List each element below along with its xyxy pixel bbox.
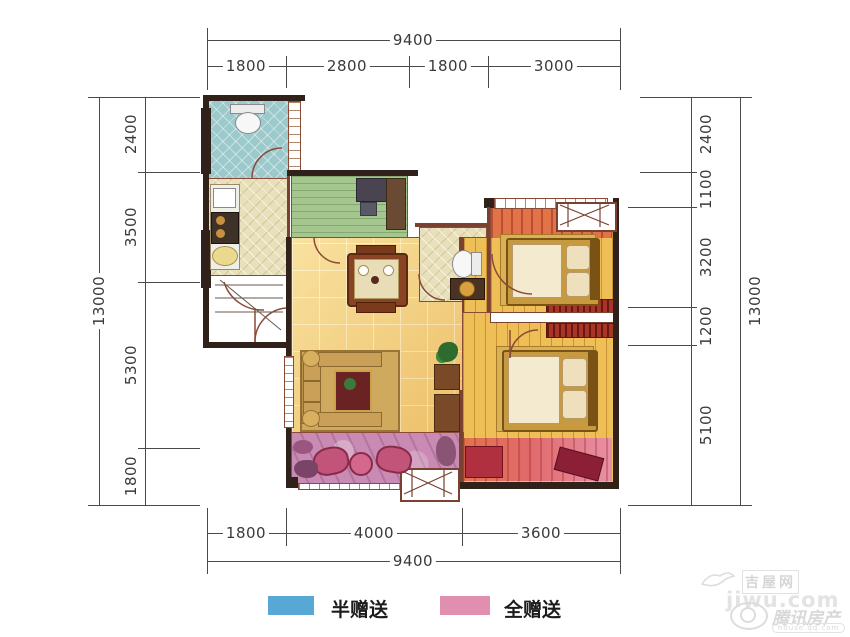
legend-swatch-full-gift xyxy=(440,596,490,615)
balcony-table xyxy=(349,452,373,476)
floorplan-page: 9400 1800 2800 1800 3000 1800 4000 3600 … xyxy=(0,0,850,637)
dim-top-seg-2: 1800 xyxy=(425,57,471,75)
dim-left-tick-top xyxy=(88,97,200,98)
bedroom2-pillow-1 xyxy=(566,245,590,270)
watermark-tencent-url: house.qq.com xyxy=(772,623,845,633)
master-desk xyxy=(465,446,503,478)
dim-bot-tick-2 xyxy=(462,508,463,546)
bay-box-bottom xyxy=(400,468,460,502)
dim-top-tick-3 xyxy=(488,56,489,88)
sofa-seat-top xyxy=(318,352,382,367)
dim-left-tick-3 xyxy=(138,448,200,449)
dim-left-seg-1: 3500 xyxy=(122,204,140,250)
dining-plate-1 xyxy=(358,265,369,276)
dim-right-tick-bot xyxy=(628,505,752,506)
tv-cabinet-1 xyxy=(434,364,460,390)
study-chair xyxy=(360,202,377,216)
wardrobe-master xyxy=(546,323,614,338)
dim-top-total: 9400 xyxy=(390,31,436,49)
dim-top-seg-0: 1800 xyxy=(223,57,269,75)
dim-bot-ext-right xyxy=(620,508,621,574)
vanity-sink xyxy=(459,281,475,297)
bedroom2-pillow-2 xyxy=(566,272,590,297)
wall-kitchen-bottom xyxy=(203,342,291,348)
dim-top-seg-3: 3000 xyxy=(531,57,577,75)
stove-burner-2 xyxy=(216,229,225,238)
dim-left-total: 13000 xyxy=(90,273,108,329)
dim-top-seg-1: 2800 xyxy=(324,57,370,75)
dim-bot-ext-left xyxy=(207,508,208,574)
window-living-left xyxy=(284,356,294,428)
dim-bot-total: 9400 xyxy=(390,552,436,570)
bedroom2-mattress xyxy=(512,244,562,298)
dim-right-seg-3: 1200 xyxy=(697,303,715,349)
wall-hall-bedroom2 xyxy=(487,207,490,312)
master-mattress xyxy=(508,356,560,424)
dim-bot-seg-2: 3600 xyxy=(518,524,564,542)
dim-left-seg-3: 1800 xyxy=(122,453,140,499)
ottoman-2 xyxy=(302,410,320,427)
dining-bowl-center xyxy=(371,276,379,284)
legend-label-full-gift: 全赠送 xyxy=(504,595,561,622)
bay-box-top-right xyxy=(556,202,617,232)
dim-left-seg-line xyxy=(145,97,146,505)
wall-balcony-corner-left xyxy=(286,477,298,488)
dim-top-tick-1 xyxy=(286,56,287,88)
stove-burner-1 xyxy=(216,216,225,225)
dim-right-seg-0: 2400 xyxy=(697,111,715,157)
toilet-bowl-main xyxy=(235,112,261,134)
dim-bot-tick-1 xyxy=(286,508,287,546)
dim-left-tick-1 xyxy=(138,172,200,173)
wall-master-bottom xyxy=(458,482,619,489)
coffee-table xyxy=(334,370,372,412)
room-entry-hall xyxy=(208,275,289,347)
dim-right-seg-2: 3200 xyxy=(697,234,715,280)
dining-plate-2 xyxy=(383,265,394,276)
balcony-plant-right xyxy=(436,436,456,466)
study-cabinet xyxy=(386,178,406,230)
tencent-logo-inner xyxy=(740,607,756,623)
wall-bath2-top xyxy=(415,223,490,227)
dim-bot-seg-1: 4000 xyxy=(351,524,397,542)
dim-right-tick-top xyxy=(640,97,752,98)
wall-between-bedrooms xyxy=(490,312,615,323)
dim-right-tick-4 xyxy=(628,345,698,346)
balcony-plant-corner xyxy=(294,460,318,478)
wall-right-outer xyxy=(613,198,619,489)
toilet-tank-small xyxy=(471,252,482,276)
kitchen-washer xyxy=(212,246,238,266)
window-bathroom-right xyxy=(288,101,301,176)
dim-top-ext-right xyxy=(620,28,621,90)
dining-chair-bottom xyxy=(356,302,396,313)
dim-right-seg-1: 1100 xyxy=(697,166,715,212)
kitchen-stove xyxy=(211,212,239,244)
dim-left-seg-2: 5300 xyxy=(122,342,140,388)
bedroom2-headboard xyxy=(590,240,598,300)
legend-swatch-half-gift xyxy=(268,596,314,615)
dim-right-seg-line xyxy=(691,97,692,505)
sofa-seat-bottom xyxy=(318,412,382,427)
dim-right-seg-4: 5100 xyxy=(697,402,715,448)
tv-cabinet-2 xyxy=(434,394,460,432)
wall-study-top xyxy=(287,170,418,176)
dim-right-tick-3 xyxy=(628,307,698,308)
dim-left-seg-0: 2400 xyxy=(122,111,140,157)
dim-top-tick-2 xyxy=(409,56,410,88)
wall-left-column-1 xyxy=(201,108,211,174)
balcony-plant-left xyxy=(293,440,313,454)
dim-top-ext-left xyxy=(207,28,208,90)
ottoman-1 xyxy=(302,350,320,367)
master-pillow-2 xyxy=(562,390,587,419)
coffee-table-decor xyxy=(344,378,356,390)
legend-label-half-gift: 半赠送 xyxy=(331,595,388,622)
dim-bot-seg-0: 1800 xyxy=(223,524,269,542)
master-headboard xyxy=(588,352,596,426)
dim-right-total: 13000 xyxy=(746,273,764,329)
dim-right-total-line xyxy=(740,97,741,505)
master-pillow-1 xyxy=(562,358,587,387)
sofa-cushion-2 xyxy=(303,381,321,402)
dim-right-tick-1 xyxy=(640,172,698,173)
dim-left-tick-bot xyxy=(88,505,200,506)
dim-left-tick-2 xyxy=(138,282,200,283)
window-balcony-rail xyxy=(298,483,402,490)
kitchen-sink xyxy=(213,188,236,208)
dim-right-tick-2 xyxy=(628,207,698,208)
